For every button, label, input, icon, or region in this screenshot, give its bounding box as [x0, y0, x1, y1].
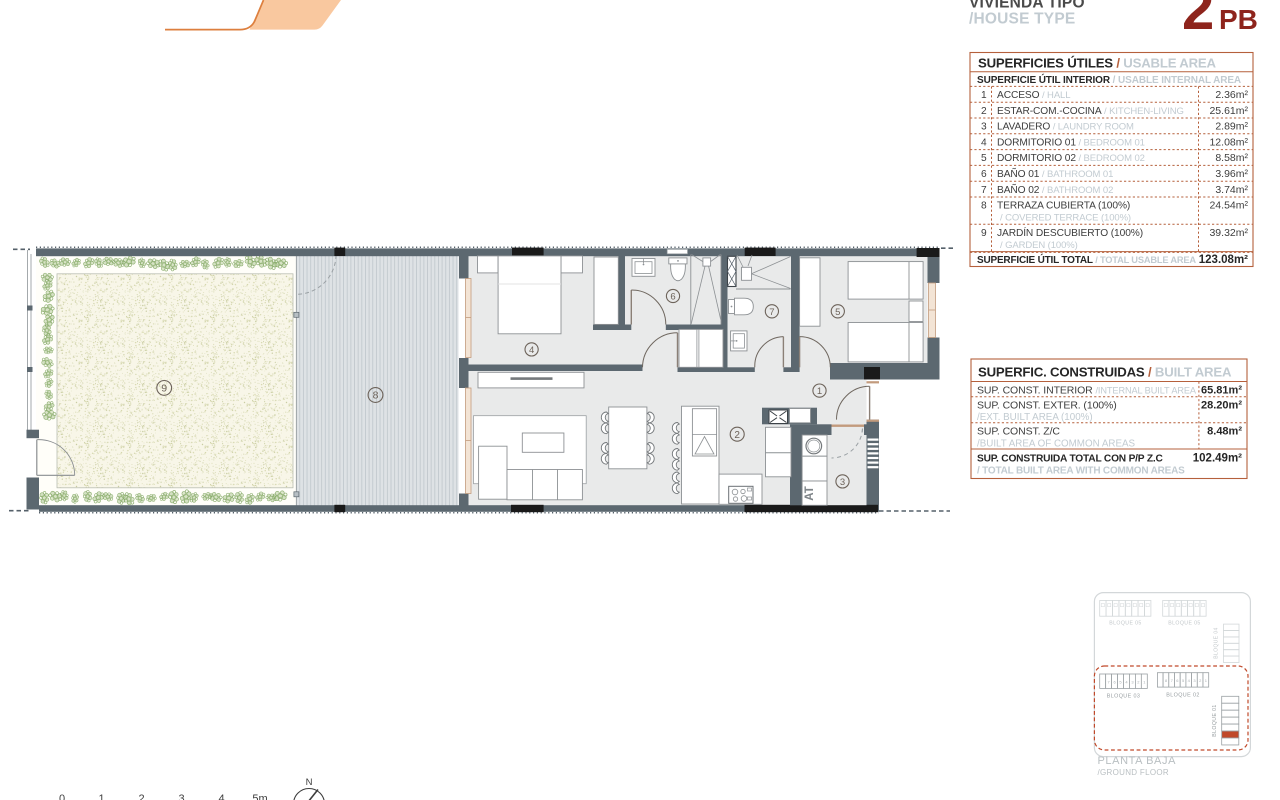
- svg-text:/ TOTAL BUILT AREA WITH COMMON: / TOTAL BUILT AREA WITH COMMON AREAS: [977, 466, 1185, 477]
- svg-text:/GROUND FLOOR: /GROUND FLOOR: [1098, 768, 1169, 777]
- svg-text:5: 5: [981, 153, 987, 164]
- svg-text:BLOQUE 01: BLOQUE 01: [1212, 704, 1218, 736]
- svg-text:SUPERFICIE ÚTIL INTERIOR / USA: SUPERFICIE ÚTIL INTERIOR / USABLE INTERN…: [977, 73, 1241, 86]
- svg-text:39.32m²: 39.32m²: [1209, 227, 1248, 239]
- svg-text:2: 2: [1182, 0, 1214, 42]
- svg-text:TERRAZA CUBIERTA (100%): TERRAZA CUBIERTA (100%): [997, 201, 1130, 212]
- svg-text:9: 9: [981, 228, 987, 239]
- svg-text:SUP. CONST. INTERIOR /INTERNAL: SUP. CONST. INTERIOR /INTERNAL BUILT ARE…: [977, 384, 1197, 396]
- svg-text:BLOQUE 03: BLOQUE 03: [1107, 694, 1141, 700]
- svg-text:JARDÍN DESCUBIERTO (100%): JARDÍN DESCUBIERTO (100%): [997, 226, 1143, 239]
- svg-text:8.58m²: 8.58m²: [1215, 152, 1248, 164]
- svg-text:5: 5: [835, 307, 840, 318]
- svg-text:2: 2: [138, 793, 144, 800]
- svg-text:0: 0: [59, 793, 65, 800]
- svg-text:2.36m²: 2.36m²: [1215, 89, 1248, 101]
- svg-text:8: 8: [981, 201, 987, 212]
- svg-text:ACCESO / HALL: ACCESO / HALL: [997, 90, 1070, 101]
- svg-text:SUPERFICIE ÚTIL TOTAL / TOTAL: SUPERFICIE ÚTIL TOTAL / TOTAL USABLE ARE…: [977, 253, 1196, 266]
- svg-text:8: 8: [373, 390, 379, 402]
- svg-text:SUP. CONST. EXTER. (100%): SUP. CONST. EXTER. (100%): [977, 400, 1117, 412]
- svg-text:2.89m²: 2.89m²: [1215, 121, 1248, 133]
- svg-text:BLOQUE 05: BLOQUE 05: [1168, 621, 1200, 627]
- svg-text:24.54m²: 24.54m²: [1209, 200, 1248, 212]
- svg-text:/ GARDEN (100%): / GARDEN (100%): [1000, 240, 1078, 251]
- svg-text:PB: PB: [1219, 4, 1258, 35]
- svg-text:1: 1: [817, 386, 822, 397]
- svg-text:4: 4: [529, 345, 534, 356]
- svg-text:/HOUSE TYPE: /HOUSE TYPE: [969, 11, 1075, 28]
- svg-text:25.61m²: 25.61m²: [1209, 105, 1248, 117]
- svg-text:BLOQUE 02: BLOQUE 02: [1166, 693, 1200, 699]
- svg-text:7: 7: [769, 307, 774, 318]
- svg-text:8.48m²: 8.48m²: [1207, 426, 1242, 438]
- svg-text:N: N: [306, 777, 313, 788]
- svg-text:3: 3: [178, 793, 184, 800]
- svg-text:3.96m²: 3.96m²: [1215, 168, 1248, 180]
- svg-text:102.49m²: 102.49m²: [1193, 453, 1242, 465]
- svg-text:SUP. CONST. Z/C: SUP. CONST. Z/C: [977, 426, 1060, 438]
- svg-text:/ COVERED TERRACE (100%): / COVERED TERRACE (100%): [1000, 213, 1131, 224]
- svg-text:4: 4: [981, 137, 987, 148]
- svg-text:2: 2: [734, 430, 740, 441]
- svg-text:AT: AT: [804, 486, 816, 500]
- svg-text:3.74m²: 3.74m²: [1215, 184, 1248, 196]
- svg-text:SUPERFIC. CONSTRUIDAS / BUILT: SUPERFIC. CONSTRUIDAS / BUILT AREA: [978, 365, 1232, 380]
- svg-text:DORMITORIO 01 / BEDROOM 01: DORMITORIO 01 / BEDROOM 01: [997, 137, 1145, 148]
- svg-text:LAVADERO / LAUNDRY ROOM: LAVADERO / LAUNDRY ROOM: [997, 122, 1134, 133]
- svg-text:123.08m²: 123.08m²: [1199, 254, 1248, 266]
- svg-text:65.81m²: 65.81m²: [1201, 384, 1242, 396]
- svg-text:2: 2: [981, 106, 987, 117]
- svg-text:5m: 5m: [252, 793, 267, 800]
- svg-text:4: 4: [218, 793, 224, 800]
- svg-text:9: 9: [161, 383, 167, 395]
- svg-text:DORMITORIO 02 / BEDROOM 02: DORMITORIO 02 / BEDROOM 02: [997, 153, 1145, 164]
- svg-text:7: 7: [981, 185, 987, 196]
- svg-text:BLOQUE 05: BLOQUE 05: [1109, 621, 1141, 627]
- svg-text:BAÑO 02 / BATHROOM 02: BAÑO 02 / BATHROOM 02: [997, 183, 1113, 196]
- svg-text:/BUILT AREA OF COMMON AREAS: /BUILT AREA OF COMMON AREAS: [977, 438, 1136, 449]
- svg-text:/EXT. BUILT AREA (100%): /EXT. BUILT AREA (100%): [977, 412, 1093, 423]
- svg-text:1: 1: [981, 90, 987, 101]
- svg-text:6: 6: [981, 169, 987, 180]
- svg-text:1: 1: [98, 793, 104, 800]
- svg-text:12.08m²: 12.08m²: [1209, 136, 1248, 148]
- svg-text:BAÑO 01 / BATHROOM 01: BAÑO 01 / BATHROOM 01: [997, 167, 1113, 180]
- svg-text:6: 6: [670, 292, 675, 303]
- svg-text:ESTAR-COM.-COCINA / KITCHEN-LI: ESTAR-COM.-COCINA / KITCHEN-LIVING: [997, 106, 1184, 117]
- svg-text:3: 3: [981, 122, 987, 133]
- svg-text:28.20m²: 28.20m²: [1201, 400, 1242, 412]
- svg-text:SUPERFICIES ÚTILES / USABLE AR: SUPERFICIES ÚTILES / USABLE AREA: [978, 56, 1217, 71]
- svg-text:3: 3: [840, 477, 845, 488]
- svg-text:BLOQUE 04: BLOQUE 04: [1214, 627, 1220, 658]
- svg-text:SUP. CONSTRUIDA TOTAL CON P/P: SUP. CONSTRUIDA TOTAL CON P/P Z.C: [977, 454, 1164, 465]
- svg-text:PLANTA BAJA: PLANTA BAJA: [1098, 755, 1177, 767]
